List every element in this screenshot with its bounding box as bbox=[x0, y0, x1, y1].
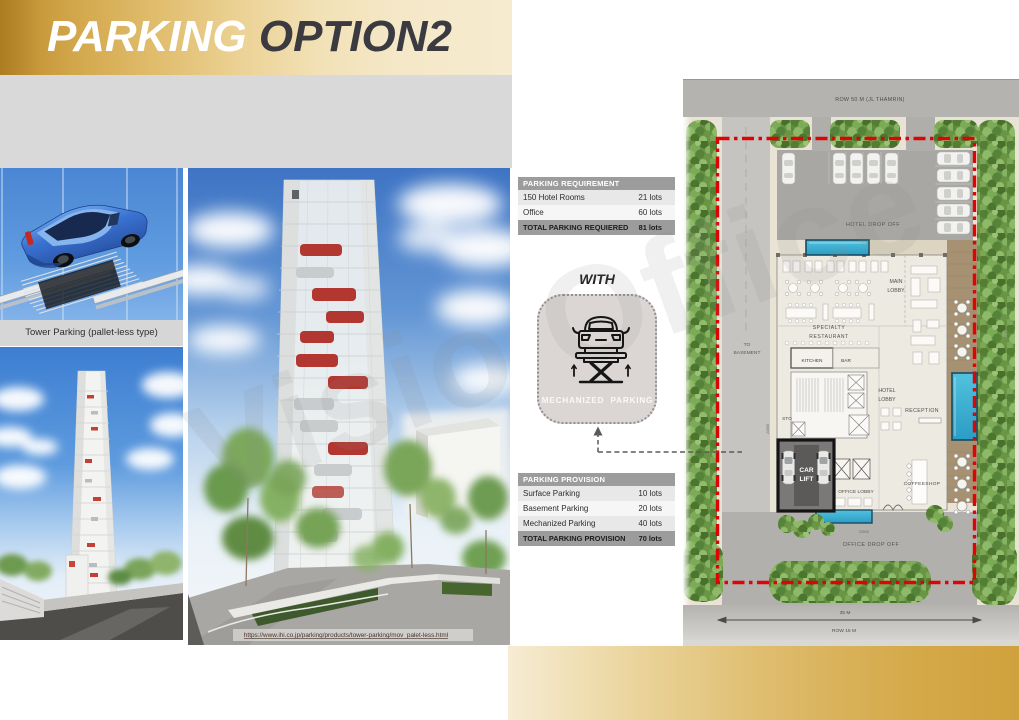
svg-text:https://www.ihi.co.jp/parking/: https://www.ihi.co.jp/parking/products/t… bbox=[244, 632, 448, 639]
svg-text:60 M: 60 M bbox=[1003, 329, 1008, 339]
svg-text:ROW 50 M (JL THAMRIN): ROW 50 M (JL THAMRIN) bbox=[835, 97, 905, 103]
svg-text:BASEMENT: BASEMENT bbox=[734, 350, 761, 356]
svg-text:OFFICE DROP OFF: OFFICE DROP OFF bbox=[843, 542, 900, 548]
svg-text:LOBBY: LOBBY bbox=[887, 288, 905, 294]
svg-text:23000: 23000 bbox=[859, 530, 869, 534]
svg-text:LOBBY: LOBBY bbox=[878, 397, 896, 403]
svg-text:35 M: 35 M bbox=[840, 610, 851, 616]
svg-text:SPECIALTY: SPECIALTY bbox=[813, 325, 846, 331]
svg-text:TO: TO bbox=[744, 342, 751, 348]
svg-text:RECEPTION: RECEPTION bbox=[905, 408, 939, 414]
svg-text:HOTEL: HOTEL bbox=[878, 388, 895, 394]
svg-text:CAR: CAR bbox=[799, 467, 814, 474]
svg-text:23000: 23000 bbox=[766, 424, 770, 434]
svg-text:BAR: BAR bbox=[841, 358, 851, 364]
svg-text:KITCHEN: KITCHEN bbox=[801, 358, 823, 364]
svg-text:OFFICE LOBBY: OFFICE LOBBY bbox=[838, 489, 874, 495]
svg-text:COFFEESHOP: COFFEESHOP bbox=[904, 481, 941, 487]
svg-text:ROW 15 M: ROW 15 M bbox=[832, 628, 856, 634]
svg-text:STO: STO bbox=[782, 416, 792, 422]
svg-text:RESTAURANT: RESTAURANT bbox=[809, 334, 849, 340]
svg-text:LIFT: LIFT bbox=[800, 476, 814, 483]
